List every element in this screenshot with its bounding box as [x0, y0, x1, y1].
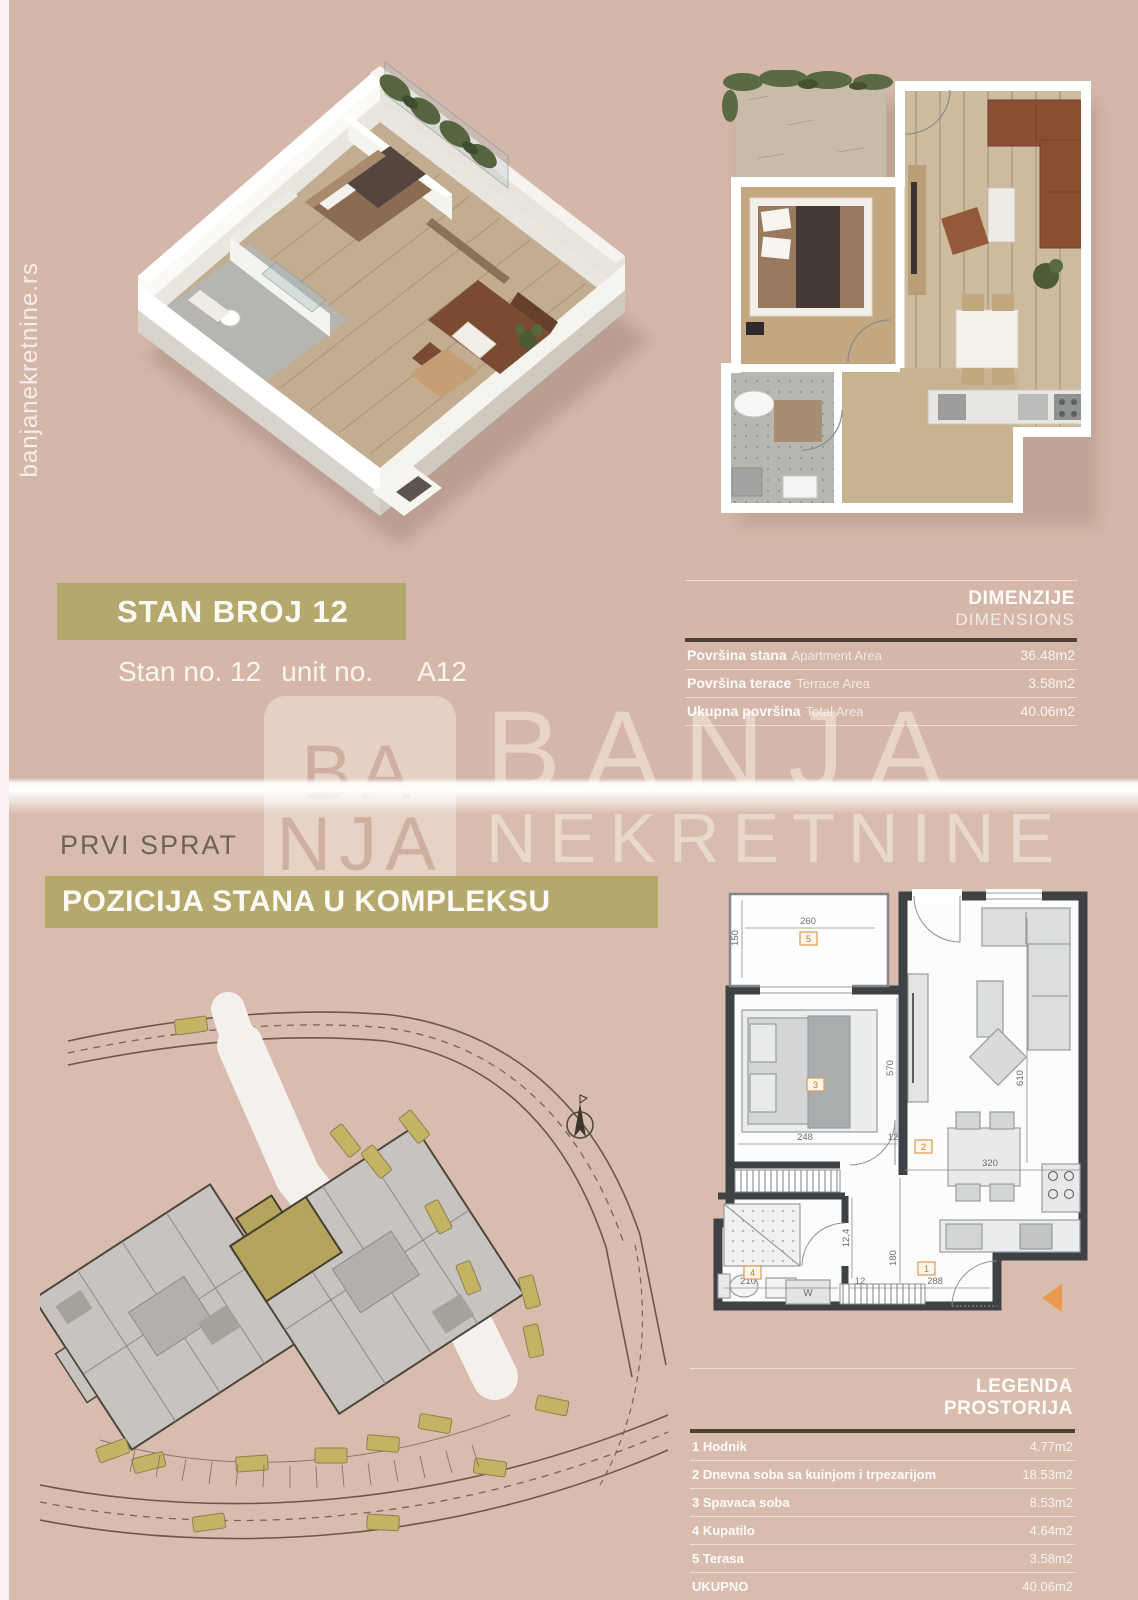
table-row: Površina stanaApartment Area 36.48m2	[685, 642, 1077, 670]
table-row: 2 Dnevna soba sa kuinjom i trpezarijom 1…	[690, 1461, 1075, 1489]
dim-hall-height: 180	[888, 1250, 899, 1266]
row-label: 3 Spavaca soba	[692, 1495, 790, 1510]
apartment-subtitle: Stan no. 12unit no.A12	[118, 656, 467, 688]
row-label: Površina terace	[687, 675, 791, 691]
dim-right-height: 610	[1015, 1070, 1026, 1086]
website-vertical-label: banjanekretnine.rs	[16, 262, 44, 477]
row-value: 3.58m2	[1030, 1551, 1073, 1566]
table-row: 1 Hodnik 4.77m2	[690, 1433, 1075, 1461]
room-tag-hall: 1	[924, 1264, 929, 1274]
subtitle-unit-code: A12	[417, 656, 467, 687]
dim-bedroom-width: 248	[797, 1132, 813, 1143]
table-row: Ukupna površinaTotal Area 40.06m2	[685, 698, 1077, 726]
room-tag-bath: 4	[750, 1268, 755, 1278]
p2-wardrobe-hatched	[735, 1170, 840, 1192]
section-divider-band	[0, 778, 1138, 814]
apartment-title: STAN BROJ 12	[117, 594, 349, 630]
room-tag-bedroom: 3	[813, 1080, 818, 1090]
row-label: 2 Dnevna soba sa kuinjom i trpezarijom	[692, 1467, 936, 1482]
dimensions-subtitle: DIMENSIONS	[687, 610, 1075, 630]
apartment-title-box: STAN BROJ 12	[57, 583, 406, 640]
row-value: 4.64m2	[1030, 1523, 1073, 1538]
dimensions-table-header: DIMENZIJE DIMENSIONS	[685, 581, 1077, 638]
dim-wall-gap: 12	[888, 1132, 899, 1143]
brochure-page: BA NJA BANJA NEKRETNINE banjanekretnine.…	[0, 0, 1138, 1600]
dim-living-width: 320	[982, 1158, 998, 1169]
row-label-en: Apartment Area	[792, 648, 882, 663]
entrance-arrow-icon	[1042, 1284, 1062, 1312]
room-tag-living: 2	[921, 1142, 926, 1152]
topdown-3d-floorplan	[688, 70, 1108, 548]
row-value: 3.58m2	[1028, 675, 1075, 691]
table-row: Površina teraceTerrace Area 3.58m2	[685, 670, 1077, 698]
site-parking-dividers	[130, 1445, 479, 1488]
p2-console	[977, 981, 1003, 1037]
iso-structure	[138, 66, 625, 516]
isometric-3d-floorplan	[80, 22, 660, 562]
room-tag-terrace: 5	[806, 934, 811, 944]
row-label: UKUPNO	[692, 1579, 748, 1594]
legend-title-line1: LEGENDA	[692, 1376, 1073, 1398]
row-label: Ukupna površina	[687, 703, 801, 719]
position-title: POZICIJA STANA U KOMPLEKSU	[62, 885, 551, 919]
td-hall-floor	[838, 368, 1018, 508]
legend-table: LEGENDA PROSTORIJA 1 Hodnik 4.77m2 2 Dne…	[690, 1368, 1075, 1600]
page-left-margin	[0, 0, 9, 1600]
subtitle-stan-no: Stan no. 12	[118, 656, 261, 687]
subtitle-unit-no: unit no.	[281, 656, 373, 687]
dimensions-title: DIMENZIJE	[687, 588, 1075, 610]
position-title-box: POZICIJA STANA U KOMPLEKSU	[45, 876, 658, 928]
dim-terrace-depth: 150	[730, 930, 741, 946]
brand-logo-line2: NJA	[276, 809, 444, 881]
row-label: 4 Kupatilo	[692, 1523, 755, 1538]
dim-hall-width: 288	[927, 1276, 943, 1287]
td-coffee-table	[988, 188, 1015, 242]
row-value: 40.06m2	[1022, 1579, 1073, 1594]
table-row-total: UKUPNO 40.06m2	[690, 1573, 1075, 1600]
row-value: 8.53m2	[1030, 1495, 1073, 1510]
row-label-en: Terrace Area	[796, 676, 870, 691]
site-plan	[40, 945, 670, 1570]
row-value: 18.53m2	[1022, 1467, 1073, 1482]
dim-terrace-width: 260	[800, 916, 816, 927]
wardrobe-label: W	[803, 1288, 813, 1299]
dim-closet-depth: 12,4	[841, 1229, 852, 1248]
row-value: 4.77m2	[1030, 1439, 1073, 1454]
floor-label: PRVI SPRAT	[60, 830, 238, 861]
p2-tv-cabinet	[908, 974, 928, 1102]
row-label-en: Total Area	[806, 704, 864, 719]
table-row: 3 Spavaca soba 8.53m2	[690, 1489, 1075, 1517]
p2-wardrobe-hatched	[840, 1284, 925, 1304]
row-label: 1 Hodnik	[692, 1439, 747, 1454]
dim-living-height: 570	[885, 1060, 896, 1076]
row-value: 40.06m2	[1021, 703, 1075, 719]
td-kitchen	[928, 390, 1086, 424]
table-row: 5 Terasa 3.58m2	[690, 1545, 1075, 1573]
row-label: Površina stana	[687, 647, 787, 663]
technical-floorplan-2d: 260 150 248 12 320 570 610 210 12 288 18…	[690, 878, 1100, 1348]
dim-hall-gap: 12	[855, 1276, 866, 1287]
dimensions-table: DIMENZIJE DIMENSIONS Površina stanaApart…	[685, 580, 1077, 726]
legend-table-header: LEGENDA PROSTORIJA	[690, 1369, 1075, 1429]
legend-title-line2: PROSTORIJA	[692, 1398, 1073, 1420]
row-value: 36.48m2	[1021, 647, 1075, 663]
table-row: 4 Kupatilo 4.64m2	[690, 1517, 1075, 1545]
row-label: 5 Terasa	[692, 1551, 744, 1566]
